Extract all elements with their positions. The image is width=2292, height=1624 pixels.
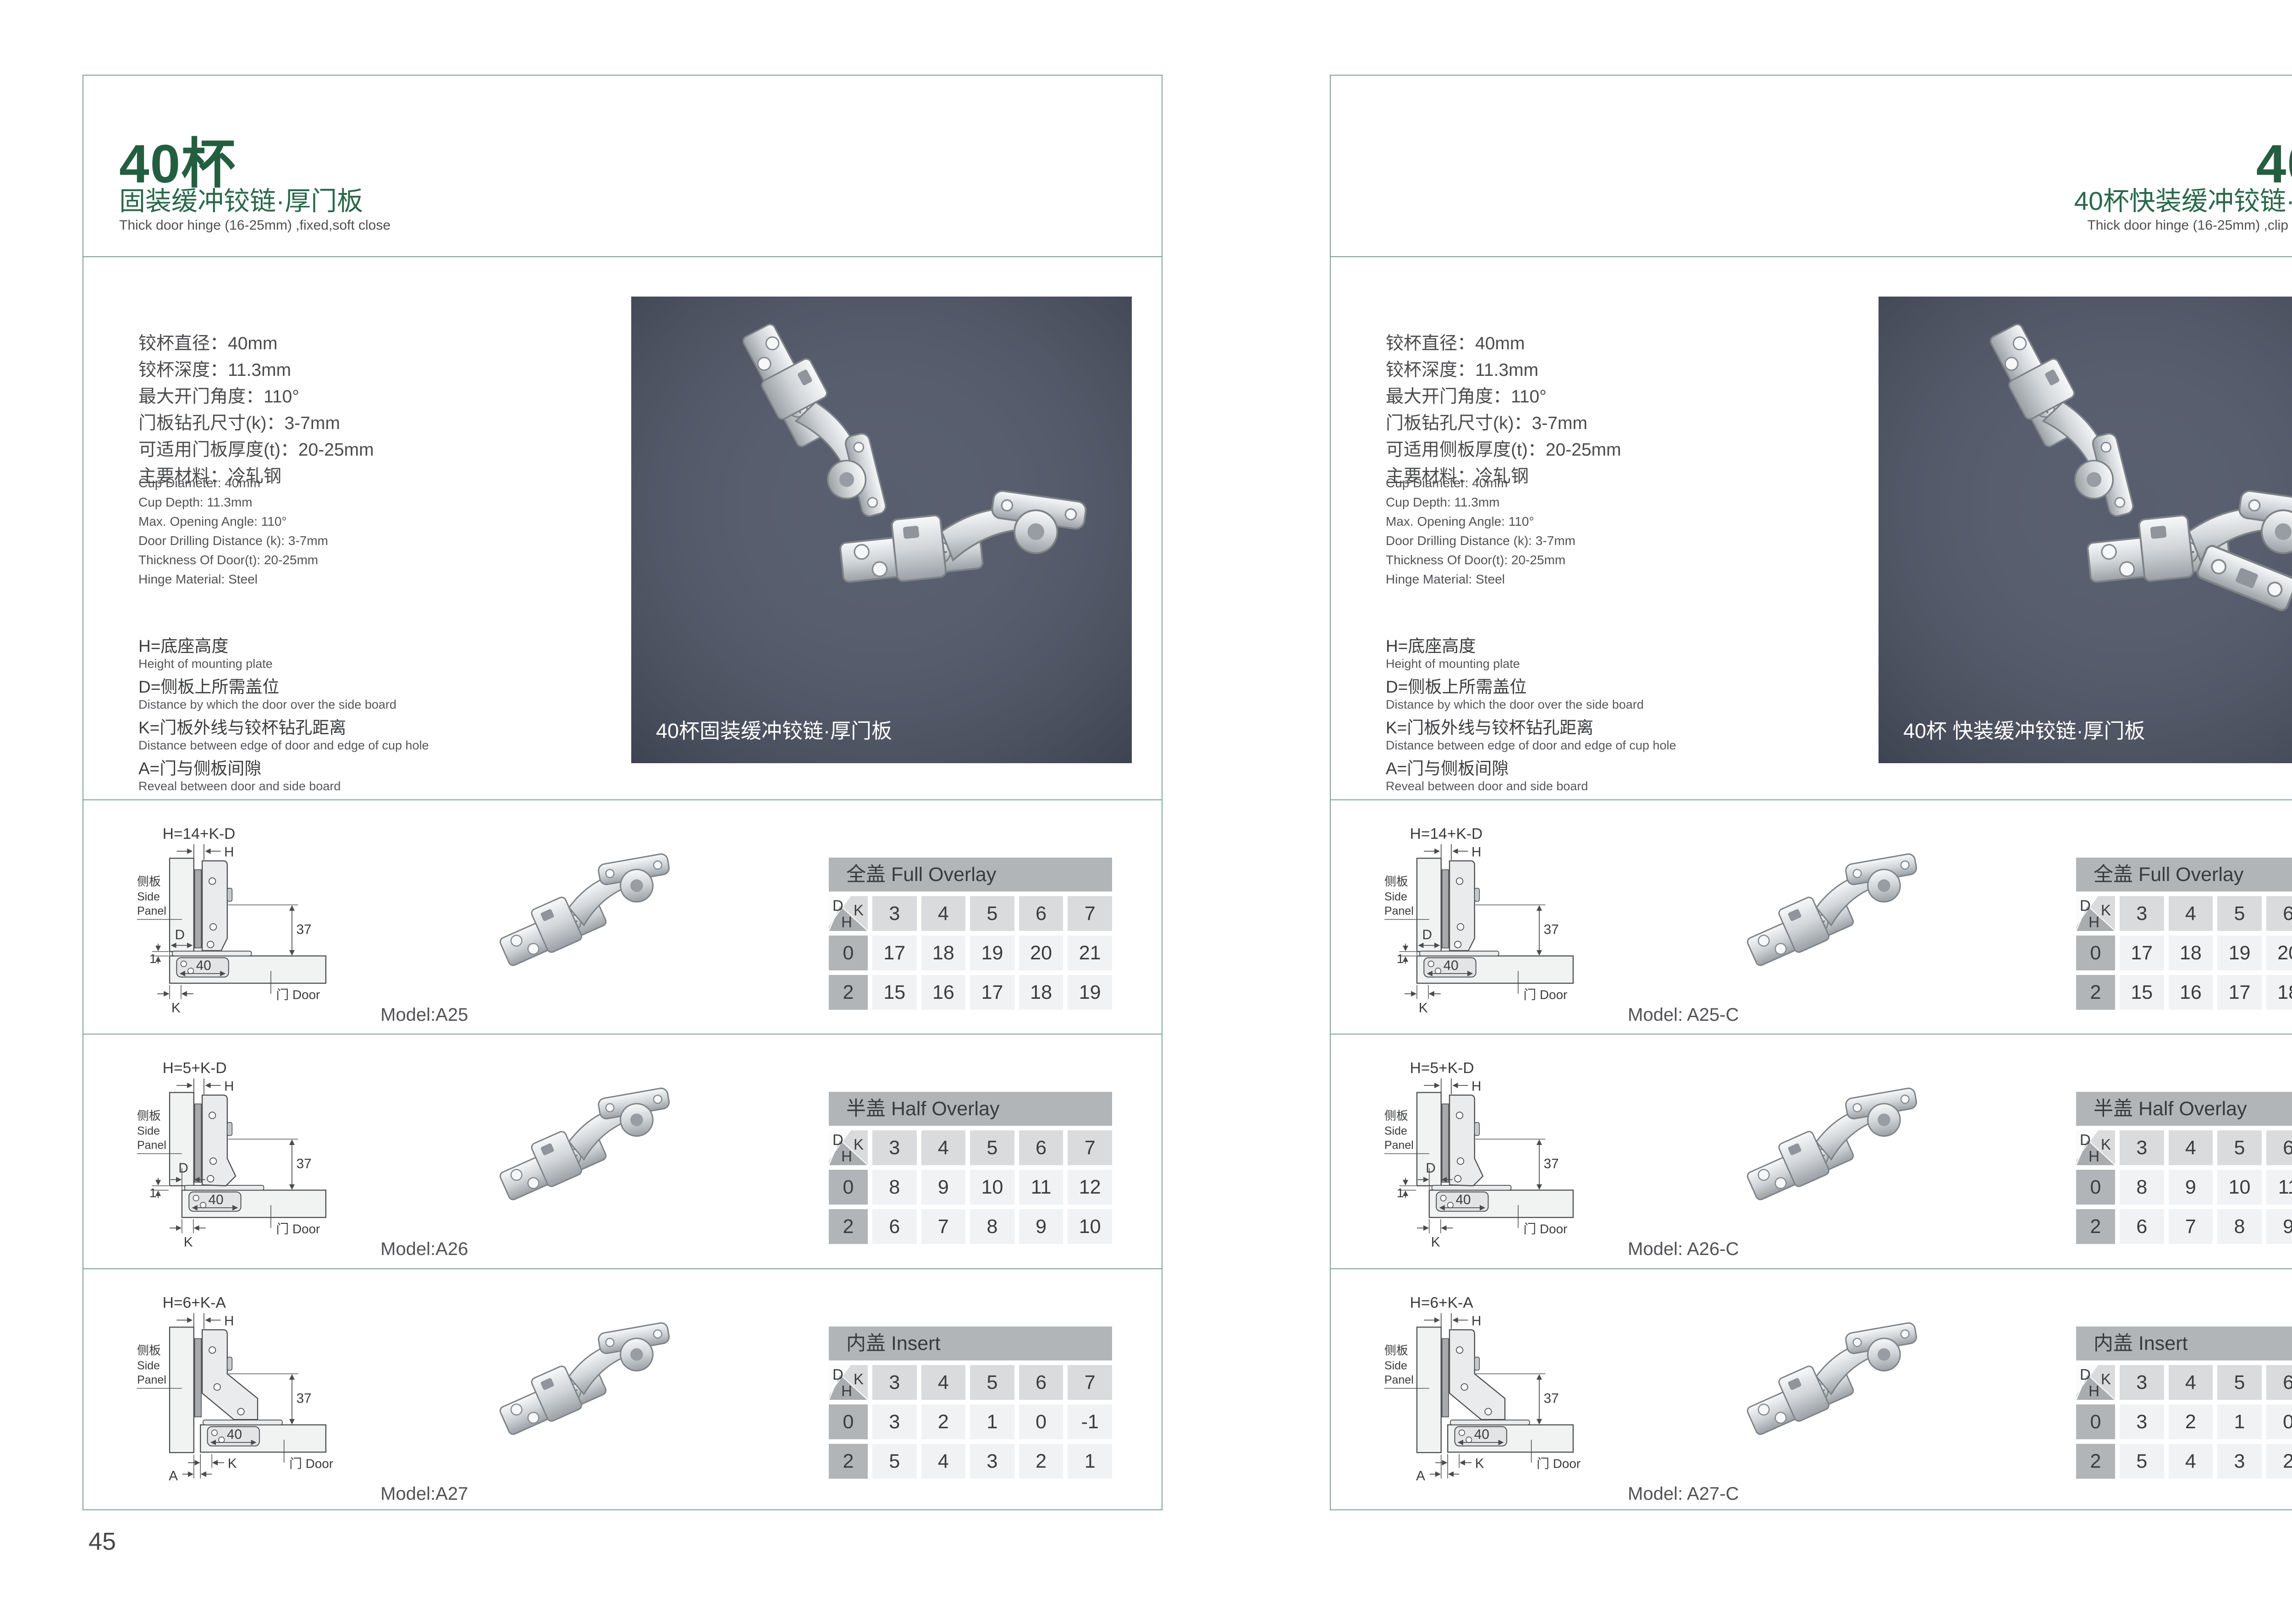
model-label: Model: A25-C xyxy=(1628,1005,1739,1025)
table-title: 全盖 Full Overlay xyxy=(829,858,1112,892)
svg-text:K: K xyxy=(1431,1234,1440,1250)
table-grid: DKH3456703210-1254321 xyxy=(2076,1365,2292,1479)
table-cell: 2 xyxy=(1019,1444,1063,1479)
table-corner-cell: DKH xyxy=(829,1130,868,1165)
specs-cn: 铰杯直径：40mm铰杯深度：11.3mm 最大开门角度：110°门板钻孔尺寸(k… xyxy=(1386,330,1621,490)
table-k-header: 6 xyxy=(1019,896,1063,931)
svg-text:Panel: Panel xyxy=(137,1373,166,1386)
table-cell: 3 xyxy=(970,1444,1014,1479)
table-cell: 10 xyxy=(1068,1209,1112,1244)
table-cell: 17 xyxy=(872,936,917,970)
svg-text:H: H xyxy=(224,1314,234,1329)
table-cell: 10 xyxy=(970,1170,1014,1205)
table-k-header: 7 xyxy=(1068,896,1112,931)
model-label: Model: A27-C xyxy=(1628,1484,1739,1504)
table-h-label: 0 xyxy=(829,1170,868,1205)
installation-diagram-full-overlay: H=14+K-DH40侧板SidePanel37D1K门 Door xyxy=(1373,817,1593,1018)
hinge-svg xyxy=(1716,1066,1940,1231)
table-cell: 5 xyxy=(2120,1444,2164,1479)
svg-text:37: 37 xyxy=(1543,1156,1559,1172)
table-k-header: 4 xyxy=(2169,1365,2213,1400)
svg-text:40: 40 xyxy=(1444,958,1459,973)
table-cell: 4 xyxy=(921,1444,966,1479)
table-h-label: 0 xyxy=(829,936,868,970)
table-cell: 6 xyxy=(872,1209,917,1244)
svg-text:门 Door: 门 Door xyxy=(1523,988,1567,1002)
svg-text:Panel: Panel xyxy=(1384,1139,1414,1151)
table-grid: DKH345670171819202121516171819 xyxy=(829,896,1112,1010)
full-overlay-table: 全盖 Full Overlay DKH345670171819202121516… xyxy=(829,858,1112,1010)
table-k-header: 5 xyxy=(970,896,1014,931)
svg-text:H=14+K-D: H=14+K-D xyxy=(163,826,236,842)
svg-text:侧板: 侧板 xyxy=(1384,1109,1408,1123)
catalog-page-right: 40杯 40杯快装缓冲铰链·厚门板 Thick door hinge (16-2… xyxy=(1330,75,2292,1510)
table-cell: 18 xyxy=(1019,975,1063,1010)
hinge-svg xyxy=(468,1066,693,1231)
svg-text:H: H xyxy=(1471,1314,1482,1329)
page-subtitle: 40杯快装缓冲铰链·厚门板 xyxy=(2074,180,2292,218)
full-overlay-table: 全盖 Full Overlay DKH345670171819202121516… xyxy=(2076,858,2292,1010)
table-h-label: 2 xyxy=(2076,1444,2115,1479)
table-cell: 18 xyxy=(2266,975,2292,1010)
svg-text:1: 1 xyxy=(149,1186,156,1200)
table-h-label: 2 xyxy=(2076,975,2115,1010)
separator-line xyxy=(83,1034,1162,1035)
table-h-label: 2 xyxy=(829,1444,868,1479)
svg-text:Panel: Panel xyxy=(137,904,166,917)
table-cell: 2 xyxy=(921,1404,966,1439)
hinge-product-image xyxy=(1716,831,1940,996)
svg-text:Side: Side xyxy=(137,1125,160,1138)
svg-text:K: K xyxy=(184,1234,193,1250)
separator-line xyxy=(83,799,1162,800)
hinge-illustration xyxy=(1735,1306,1932,1439)
svg-text:门 Door: 门 Door xyxy=(276,1222,320,1236)
table-k-header: 5 xyxy=(2217,896,2262,931)
table-cell: 19 xyxy=(970,936,1014,970)
table-corner-cell: DKH xyxy=(829,896,868,931)
table-k-header: 4 xyxy=(921,1130,966,1165)
insert-table: 内盖 Insert DKH3456703210-1254321 xyxy=(829,1327,1112,1479)
table-grid: DKH345670891011122678910 xyxy=(829,1130,1112,1244)
table-k-header: 3 xyxy=(872,1365,917,1400)
svg-text:40: 40 xyxy=(196,958,211,973)
diagram-svg: H=14+K-DH40侧板SidePanel37D1K门 Door xyxy=(1373,817,1593,1018)
svg-text:1: 1 xyxy=(1397,952,1404,966)
separator-line xyxy=(1331,799,2292,800)
table-cell: 9 xyxy=(2169,1170,2213,1205)
table-cell: 2 xyxy=(2266,1444,2292,1479)
svg-text:H=14+K-D: H=14+K-D xyxy=(1410,826,1483,842)
table-cell: 18 xyxy=(2169,936,2213,970)
hinge-product-image xyxy=(1716,1066,1940,1231)
svg-text:D: D xyxy=(178,1161,188,1176)
table-corner-cell: DKH xyxy=(2076,1130,2115,1165)
table-k-header: 6 xyxy=(2266,896,2292,931)
table-h-label: 2 xyxy=(829,1209,868,1244)
table-cell: 1 xyxy=(970,1404,1014,1439)
table-cell: 15 xyxy=(2120,975,2164,1010)
model-label: Model:A25 xyxy=(380,1005,468,1025)
svg-text:侧板: 侧板 xyxy=(137,1344,161,1357)
svg-text:Panel: Panel xyxy=(137,1139,166,1151)
dimension-legend: H=底座高度Height of mounting plate D=侧板上所需盖位… xyxy=(138,630,429,793)
svg-text:40: 40 xyxy=(227,1427,242,1442)
svg-text:40: 40 xyxy=(1455,1192,1471,1207)
svg-text:Side: Side xyxy=(1384,1125,1407,1138)
table-k-header: 4 xyxy=(2169,896,2213,931)
installation-diagram-half-overlay: H=5+K-DH40侧板SidePanel37D1K门 Door xyxy=(1373,1051,1593,1253)
page-subtitle-en: Thick door hinge (16-25mm) ,fixed,soft c… xyxy=(119,218,391,233)
table-cell: 7 xyxy=(921,1209,966,1244)
table-grid: DKH345670891011122678910 xyxy=(2076,1130,2292,1244)
svg-text:Panel: Panel xyxy=(1384,904,1414,917)
hinge-product-image xyxy=(468,1066,693,1231)
table-title: 半盖 Half Overlay xyxy=(2076,1092,2292,1126)
svg-text:H=5+K-D: H=5+K-D xyxy=(163,1060,227,1077)
diagram-svg: H=5+K-DH40侧板SidePanel37D1K门 Door xyxy=(126,1051,346,1253)
table-k-header: 5 xyxy=(970,1130,1014,1165)
table-h-label: 0 xyxy=(2076,1404,2115,1439)
product-photo-panel: 40杯 快装缓冲铰链·厚门板 xyxy=(1879,297,2292,763)
table-title: 半盖 Half Overlay xyxy=(829,1092,1112,1126)
svg-text:侧板: 侧板 xyxy=(137,875,161,888)
specs-cn: 铰杯直径：40mm铰杯深度：11.3mm 最大开门角度：110°门板钻孔尺寸(k… xyxy=(138,330,374,490)
svg-text:A: A xyxy=(169,1468,178,1483)
hinge-illustration xyxy=(487,1072,684,1204)
svg-text:门 Door: 门 Door xyxy=(276,988,320,1002)
svg-text:H: H xyxy=(1471,1079,1482,1094)
table-k-header: 3 xyxy=(2120,1365,2164,1400)
svg-text:Side: Side xyxy=(1384,1360,1407,1372)
photo-caption: 40杯 快装缓冲铰链·厚门板 xyxy=(1903,714,2145,744)
svg-text:D: D xyxy=(1426,1161,1436,1176)
svg-text:侧板: 侧板 xyxy=(1384,1344,1408,1357)
svg-text:门 Door: 门 Door xyxy=(1537,1457,1581,1471)
table-cell: 8 xyxy=(872,1170,917,1205)
table-grid: DKH345670171819202121516171819 xyxy=(2076,896,2292,1010)
insert-table: 内盖 Insert DKH3456703210-1254321 xyxy=(2076,1327,2292,1479)
svg-text:Side: Side xyxy=(137,891,160,903)
table-cell: 6 xyxy=(2120,1209,2164,1244)
table-cell: 17 xyxy=(2217,975,2262,1010)
half-overlay-table: 半盖 Half Overlay DKH345670891011122678910 xyxy=(2076,1092,2292,1244)
table-title: 全盖 Full Overlay xyxy=(2076,858,2292,892)
product-photo xyxy=(631,297,1132,763)
hinge-product-image xyxy=(1716,1300,1940,1465)
svg-text:37: 37 xyxy=(296,1156,311,1172)
table-h-label: 0 xyxy=(2076,1170,2115,1205)
table-cell: 8 xyxy=(2217,1209,2262,1244)
hinge-svg xyxy=(1716,831,1940,996)
table-k-header: 5 xyxy=(970,1365,1014,1400)
table-k-header: 3 xyxy=(2120,1130,2164,1165)
table-cell: 20 xyxy=(1019,936,1063,970)
hinge-product-image xyxy=(468,831,693,996)
svg-text:H=5+K-D: H=5+K-D xyxy=(1410,1060,1474,1077)
table-cell: 0 xyxy=(1019,1404,1063,1439)
table-k-header: 6 xyxy=(2266,1365,2292,1400)
table-k-header: 6 xyxy=(1019,1130,1063,1165)
table-cell: 9 xyxy=(1019,1209,1063,1244)
svg-text:H=6+K-A: H=6+K-A xyxy=(163,1294,226,1311)
photo-caption: 40杯固装缓冲铰链·厚门板 xyxy=(656,714,892,744)
table-cell: 16 xyxy=(2169,975,2213,1010)
catalog-spread: { "colors":{ "accent_green":"#245e41","b… xyxy=(0,0,2292,1624)
table-cell: 20 xyxy=(2266,936,2292,970)
model-label: Model: A26-C xyxy=(1628,1239,1739,1260)
svg-text:Side: Side xyxy=(1384,891,1407,903)
table-cell: 19 xyxy=(1068,975,1112,1010)
svg-text:37: 37 xyxy=(296,922,311,937)
separator-line xyxy=(83,1268,1162,1269)
product-photo-panel: 40杯固装缓冲铰链·厚门板 xyxy=(631,297,1132,763)
table-corner-cell: DKH xyxy=(2076,896,2115,931)
hinge-illustration xyxy=(1735,837,1932,970)
table-k-header: 5 xyxy=(2217,1130,2262,1165)
table-cell: 19 xyxy=(2217,936,2262,970)
table-cell: 7 xyxy=(2169,1209,2213,1244)
model-label: Model:A26 xyxy=(380,1239,468,1260)
table-cell: 17 xyxy=(2120,936,2164,970)
table-cell: 3 xyxy=(2217,1444,2262,1479)
svg-text:H: H xyxy=(1471,845,1482,860)
specs-en: Cup Diameter: 40mmCup Depth: 11.3mm Max.… xyxy=(1386,473,1576,589)
table-cell: 4 xyxy=(2169,1444,2213,1479)
svg-text:D: D xyxy=(175,927,185,942)
svg-text:1: 1 xyxy=(1397,1186,1404,1200)
table-cell: 3 xyxy=(872,1404,917,1439)
svg-text:K: K xyxy=(171,1000,181,1015)
table-cell: 12 xyxy=(1068,1170,1112,1205)
svg-text:40: 40 xyxy=(1474,1427,1489,1442)
table-k-header: 5 xyxy=(2217,1365,2262,1400)
table-grid: DKH3456703210-1254321 xyxy=(829,1365,1112,1479)
separator-line xyxy=(1331,1268,2292,1269)
svg-text:A: A xyxy=(1416,1468,1425,1483)
table-cell: 15 xyxy=(872,975,917,1010)
page-subtitle-en: Thick door hinge (16-25mm) ,clip on ,sof… xyxy=(2087,218,2292,233)
table-k-header: 7 xyxy=(1068,1130,1112,1165)
svg-text:37: 37 xyxy=(1543,922,1559,937)
table-k-header: 4 xyxy=(2169,1130,2213,1165)
hinge-illustration xyxy=(487,1306,684,1439)
table-k-header: 4 xyxy=(921,1365,966,1400)
table-k-header: 6 xyxy=(1019,1365,1063,1400)
catalog-page-left: 40杯 固装缓冲铰链·厚门板 Thick door hinge (16-25mm… xyxy=(83,75,1163,1510)
table-title: 内盖 Insert xyxy=(829,1327,1112,1360)
product-photo xyxy=(1879,297,2292,763)
svg-text:Panel: Panel xyxy=(1384,1373,1414,1386)
svg-text:37: 37 xyxy=(296,1391,311,1406)
hinge-svg xyxy=(1716,1300,1940,1465)
svg-text:Side: Side xyxy=(137,1360,160,1372)
hinge-product-image xyxy=(468,1300,693,1465)
model-label: Model:A27 xyxy=(380,1484,468,1504)
svg-text:D: D xyxy=(1422,927,1432,942)
table-cell: 0 xyxy=(2266,1404,2292,1439)
hinge-illustration xyxy=(487,837,684,970)
table-h-label: 2 xyxy=(2076,1209,2115,1244)
svg-text:H: H xyxy=(224,845,234,860)
table-cell: 5 xyxy=(872,1444,917,1479)
installation-diagram-half-overlay: H=5+K-DH40侧板SidePanel37D1K门 Door xyxy=(126,1051,346,1253)
table-cell: 11 xyxy=(1019,1170,1063,1205)
diagram-svg: H=5+K-DH40侧板SidePanel37D1K门 Door xyxy=(1373,1051,1593,1253)
svg-text:1: 1 xyxy=(149,952,156,966)
half-overlay-table: 半盖 Half Overlay DKH345670891011122678910 xyxy=(829,1092,1112,1244)
table-cell: -1 xyxy=(1068,1404,1112,1439)
page-subtitle: 固装缓冲铰链·厚门板 xyxy=(119,180,363,218)
hinge-illustration xyxy=(1735,1072,1932,1204)
table-cell: 9 xyxy=(2266,1209,2292,1244)
table-cell: 8 xyxy=(970,1209,1014,1244)
table-k-header: 6 xyxy=(2266,1130,2292,1165)
dimension-legend: H=底座高度Height of mounting plate D=侧板上所需盖位… xyxy=(1386,630,1676,793)
diagram-svg: H=6+K-AH40侧板SidePanel37KA门 Door xyxy=(126,1286,346,1487)
installation-diagram-insert: H=6+K-AH40侧板SidePanel37KA门 Door xyxy=(1373,1286,1593,1487)
svg-text:门 Door: 门 Door xyxy=(1523,1222,1567,1236)
table-h-label: 0 xyxy=(2076,936,2115,970)
svg-text:H=6+K-A: H=6+K-A xyxy=(1410,1294,1474,1311)
svg-text:侧板: 侧板 xyxy=(1384,875,1408,888)
specs-en: Cup Diameter: 40mmCup Depth: 11.3mm Max.… xyxy=(138,473,328,589)
diagram-svg: H=14+K-DH40侧板SidePanel37D1K门 Door xyxy=(126,817,346,1018)
separator-line xyxy=(1331,256,2292,257)
table-cell: 3 xyxy=(2120,1404,2164,1439)
table-k-header: 7 xyxy=(1068,1365,1112,1400)
svg-text:K: K xyxy=(228,1456,237,1471)
table-h-label: 0 xyxy=(829,1404,868,1439)
table-corner-cell: DKH xyxy=(829,1365,868,1400)
table-cell: 2 xyxy=(2169,1404,2213,1439)
table-title: 内盖 Insert xyxy=(2076,1327,2292,1360)
table-k-header: 3 xyxy=(872,1130,917,1165)
installation-diagram-insert: H=6+K-AH40侧板SidePanel37KA门 Door xyxy=(126,1286,346,1487)
table-corner-cell: DKH xyxy=(2076,1365,2115,1400)
table-cell: 18 xyxy=(921,936,966,970)
table-cell: 8 xyxy=(2120,1170,2164,1205)
svg-text:H: H xyxy=(224,1079,234,1094)
table-k-header: 4 xyxy=(921,896,966,931)
svg-text:门 Door: 门 Door xyxy=(289,1457,333,1471)
table-cell: 1 xyxy=(2217,1404,2262,1439)
table-cell: 21 xyxy=(1068,936,1112,970)
table-cell: 16 xyxy=(921,975,966,1010)
hinge-svg xyxy=(468,1300,693,1465)
installation-diagram-full-overlay: H=14+K-DH40侧板SidePanel37D1K门 Door xyxy=(126,817,346,1018)
separator-line xyxy=(1331,1034,2292,1035)
svg-text:37: 37 xyxy=(1543,1391,1559,1406)
table-cell: 9 xyxy=(921,1170,966,1205)
diagram-svg: H=6+K-AH40侧板SidePanel37KA门 Door xyxy=(1373,1286,1593,1487)
svg-text:K: K xyxy=(1475,1456,1484,1471)
table-h-label: 2 xyxy=(829,975,868,1010)
table-cell: 11 xyxy=(2266,1170,2292,1205)
table-cell: 17 xyxy=(970,975,1014,1010)
table-cell: 1 xyxy=(1068,1444,1112,1479)
table-cell: 10 xyxy=(2217,1170,2262,1205)
hinge-svg xyxy=(468,831,693,996)
page-number: 45 xyxy=(88,1527,116,1556)
table-k-header: 3 xyxy=(872,896,917,931)
separator-line xyxy=(83,256,1162,257)
table-k-header: 3 xyxy=(2120,896,2164,931)
svg-text:K: K xyxy=(1419,1000,1428,1015)
svg-text:40: 40 xyxy=(208,1192,223,1207)
svg-text:侧板: 侧板 xyxy=(137,1109,161,1123)
